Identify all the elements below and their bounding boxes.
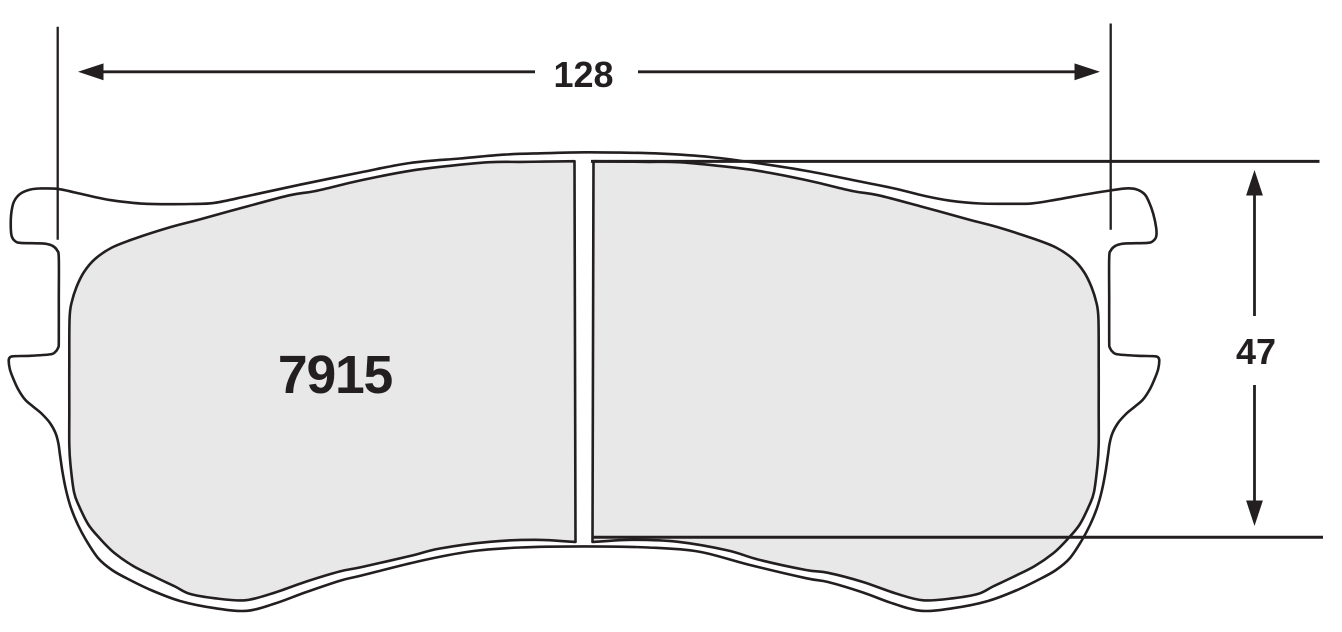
svg-text:47: 47 (1236, 331, 1276, 372)
svg-text:128: 128 (553, 54, 613, 95)
svg-text:7915: 7915 (278, 346, 393, 405)
